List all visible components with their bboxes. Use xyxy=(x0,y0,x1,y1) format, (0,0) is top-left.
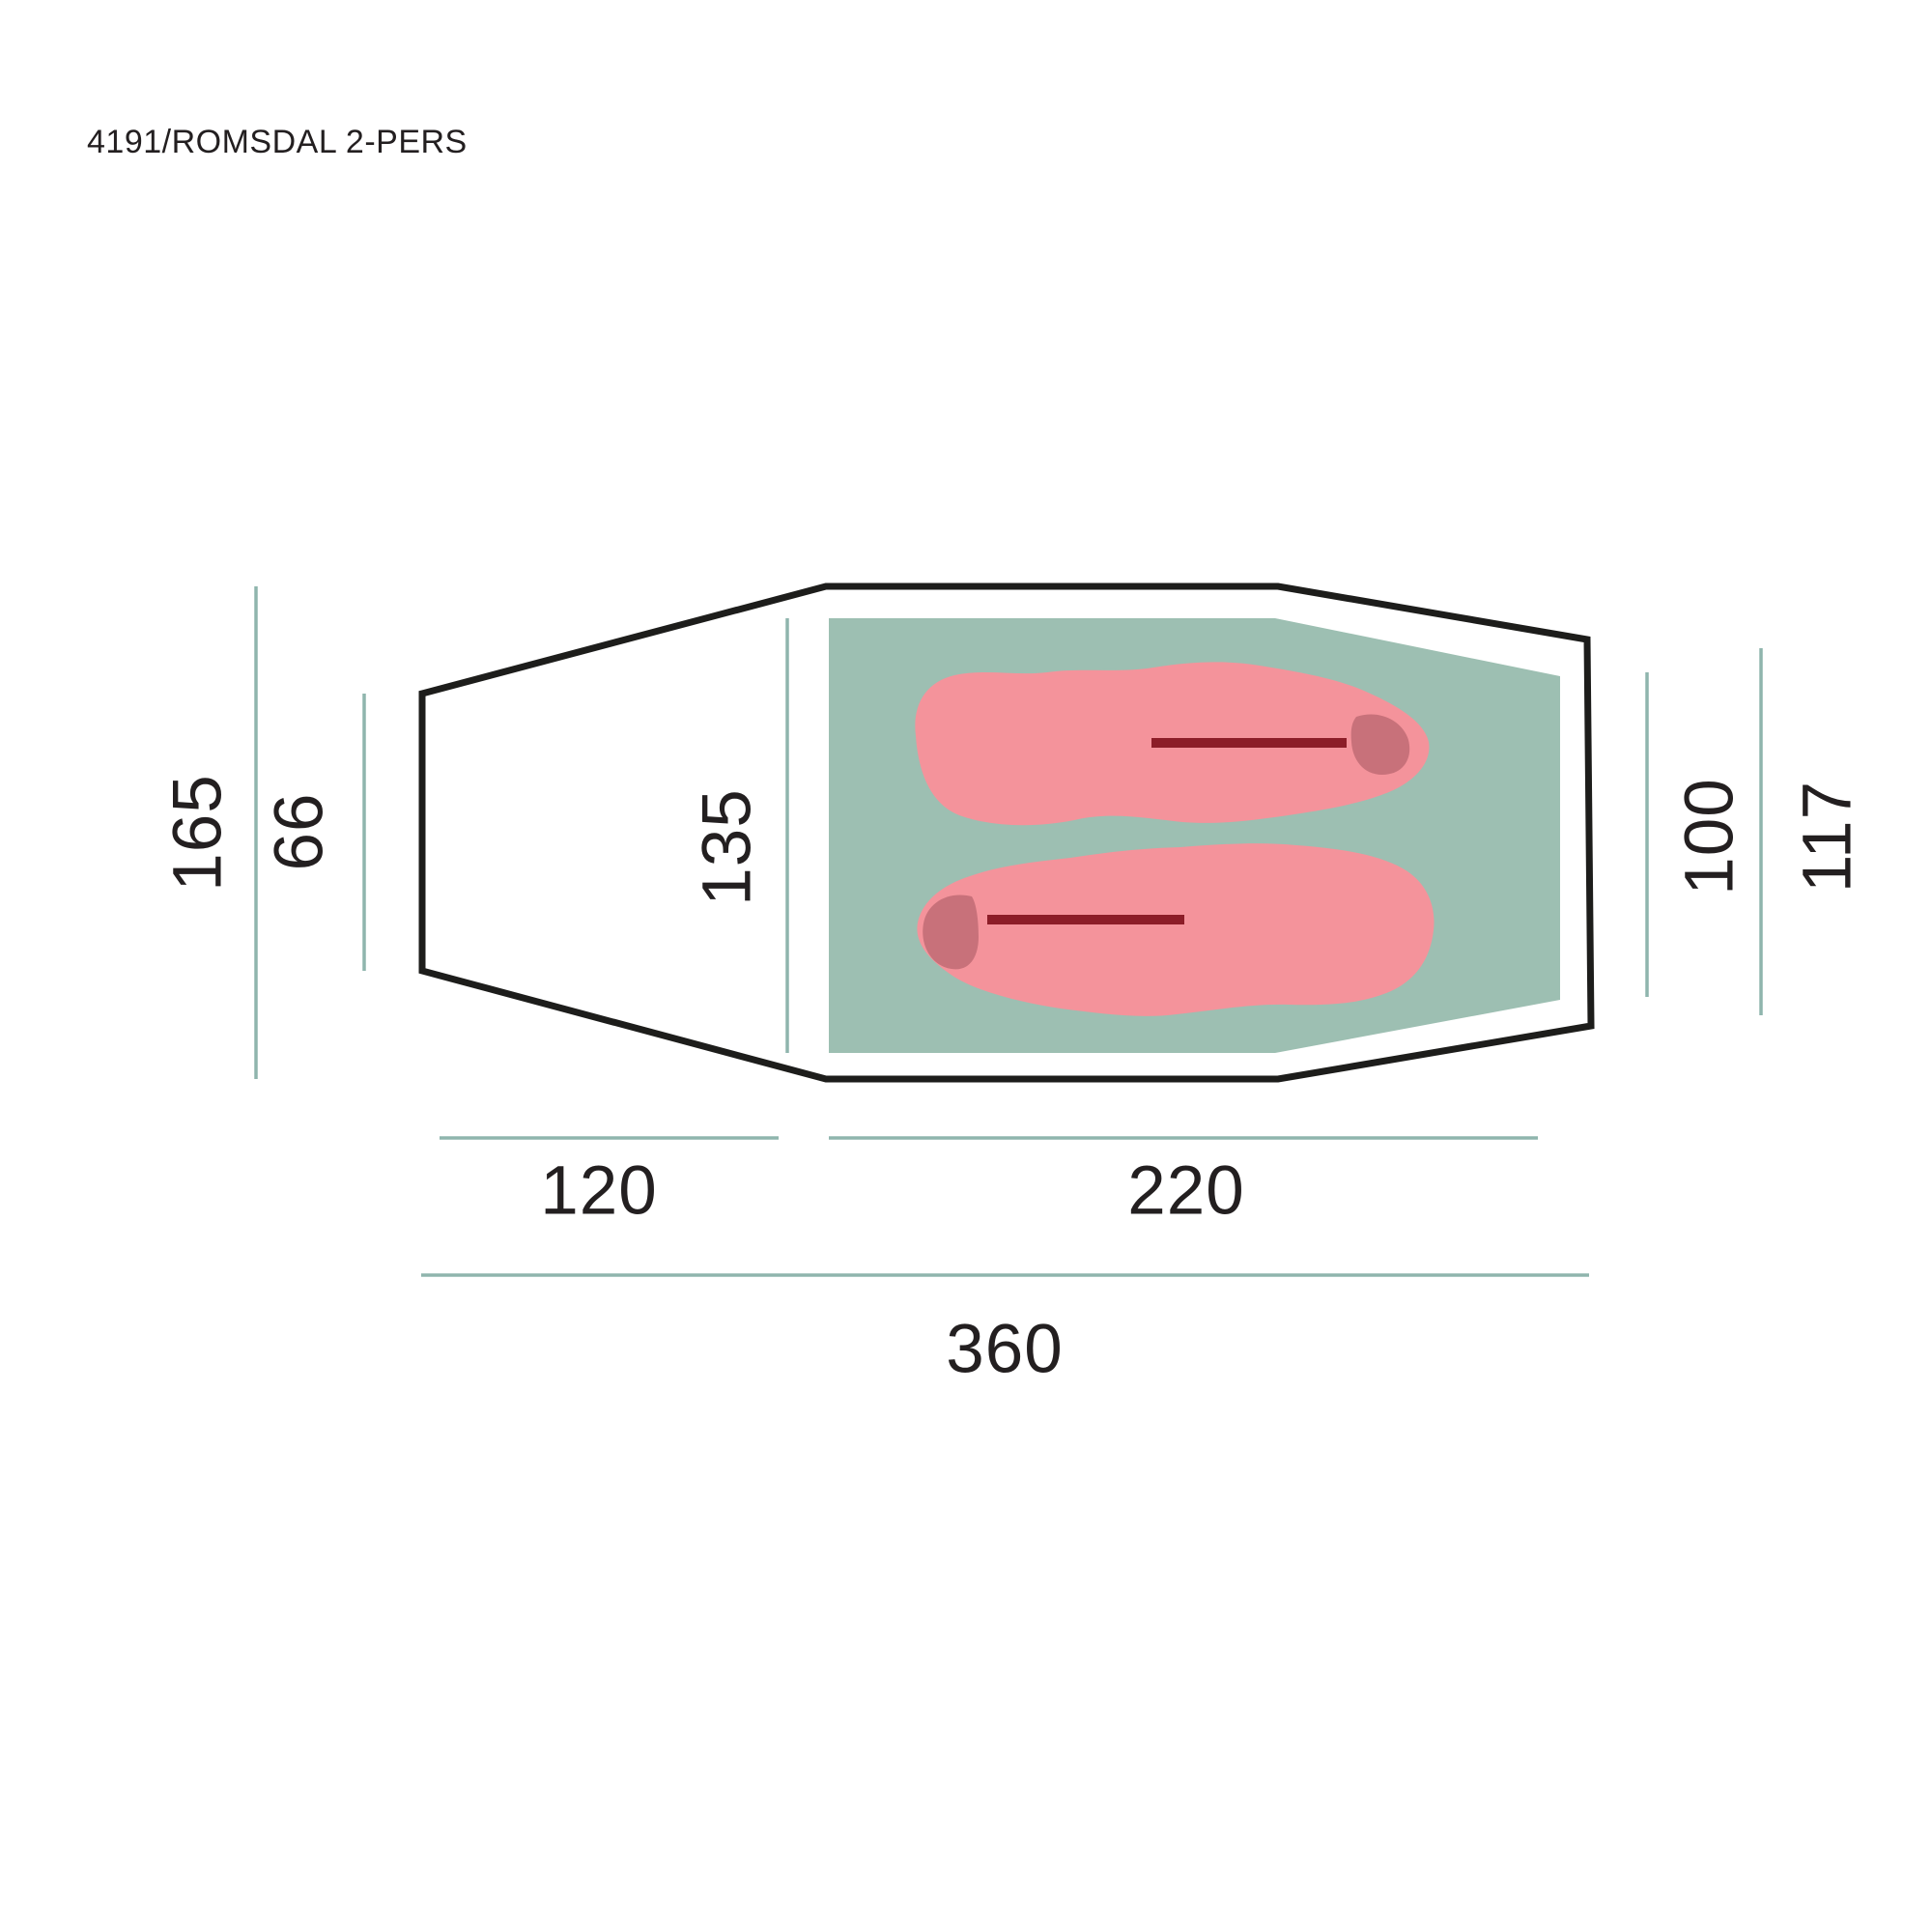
tent-drawing xyxy=(422,586,1591,1079)
dim-label-inner-height-right: 100 xyxy=(1672,778,1748,895)
dim-label-vestibule-length: 120 xyxy=(540,1153,657,1230)
dim-label-left-edge-height: 66 xyxy=(262,793,338,871)
dim-label-inner-width: 135 xyxy=(690,788,766,905)
dim-label-total-length: 360 xyxy=(946,1312,1063,1388)
sleeping-bag-bottom-body xyxy=(917,843,1434,1016)
sleeping-bag-top xyxy=(915,662,1429,825)
tent-floorplan-diagram: 4191/ROMSDAL 2-PERS xyxy=(0,0,1932,1932)
tent-spec-page: 4191/ROMSDAL 2-PERS xyxy=(0,0,1932,1932)
dim-label-outer-height: 165 xyxy=(160,774,237,891)
dim-label-outer-height-right: 117 xyxy=(1790,781,1866,893)
sleeping-bag-bottom xyxy=(917,843,1434,1016)
diagram-title: 4191/ROMSDAL 2-PERS xyxy=(87,124,468,160)
dim-label-inner-length: 220 xyxy=(1127,1153,1244,1230)
